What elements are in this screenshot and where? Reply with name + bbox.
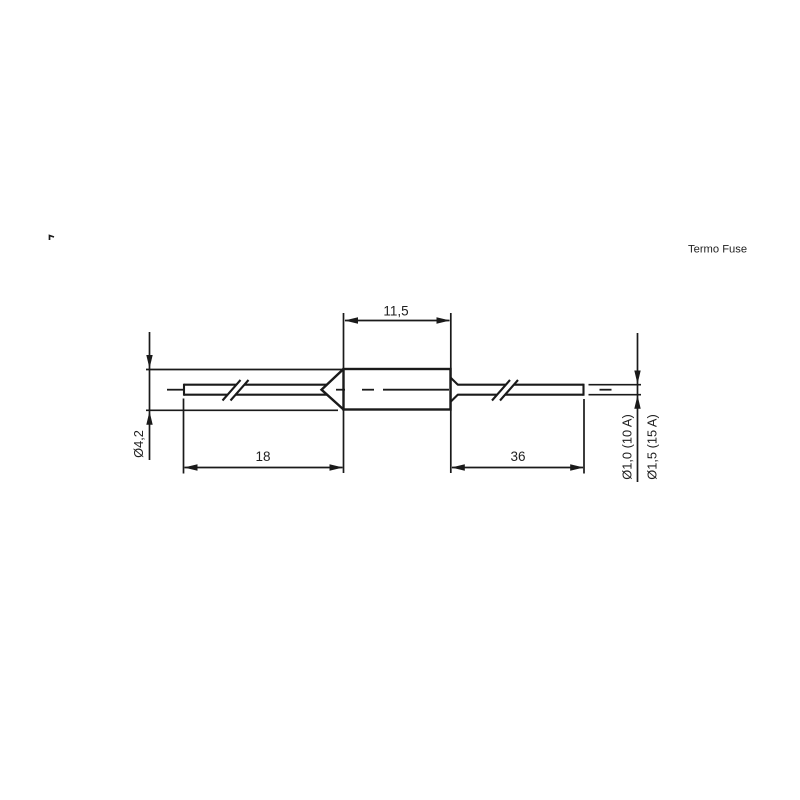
arrow-up-icon [146,411,152,425]
drawing-title: Termo Fuse [688,244,747,256]
dimension-lead-diameter: Ø1,0 (10 A) Ø1,5 (15 A) [589,333,660,482]
arrow-down-icon [146,355,152,369]
thermal-fuse-drawing: 11,5 18 36 Ø4,2 [0,0,800,800]
arrow-left-icon [184,464,198,470]
dimension-body-diameter: Ø4,2 [131,332,343,460]
stray-mark [50,236,55,241]
arrow-left-icon [451,464,465,470]
left-lead-break-icon [223,380,241,401]
dimension-left-lead-length-label: 18 [255,449,270,464]
right-lead-break-icon [500,380,518,401]
dimension-lead-diameter-small-label: Ø1,0 (10 A) [620,414,635,479]
dimension-right-lead-length: 36 [451,399,584,474]
left-lead-wire [184,380,327,401]
dimension-right-lead-length-label: 36 [510,449,525,464]
arrow-up-icon [634,395,640,409]
right-lead-wire [458,380,584,401]
arrow-right-icon [330,464,344,470]
dimension-lead-diameter-large-label: Ø1,5 (15 A) [645,414,660,479]
arrow-left-icon [345,317,359,323]
arrow-down-icon [634,371,640,385]
left-lead-break-icon [231,380,249,401]
arrow-right-icon [437,317,451,323]
right-lead-break-icon [492,380,510,401]
dimension-body-diameter-label: Ø4,2 [131,430,146,458]
dimension-body-length: 11,5 [344,304,451,474]
dimension-body-length-label: 11,5 [383,304,408,319]
technical-drawing-page: 11,5 18 36 Ø4,2 [0,0,800,800]
arrow-right-icon [570,464,584,470]
